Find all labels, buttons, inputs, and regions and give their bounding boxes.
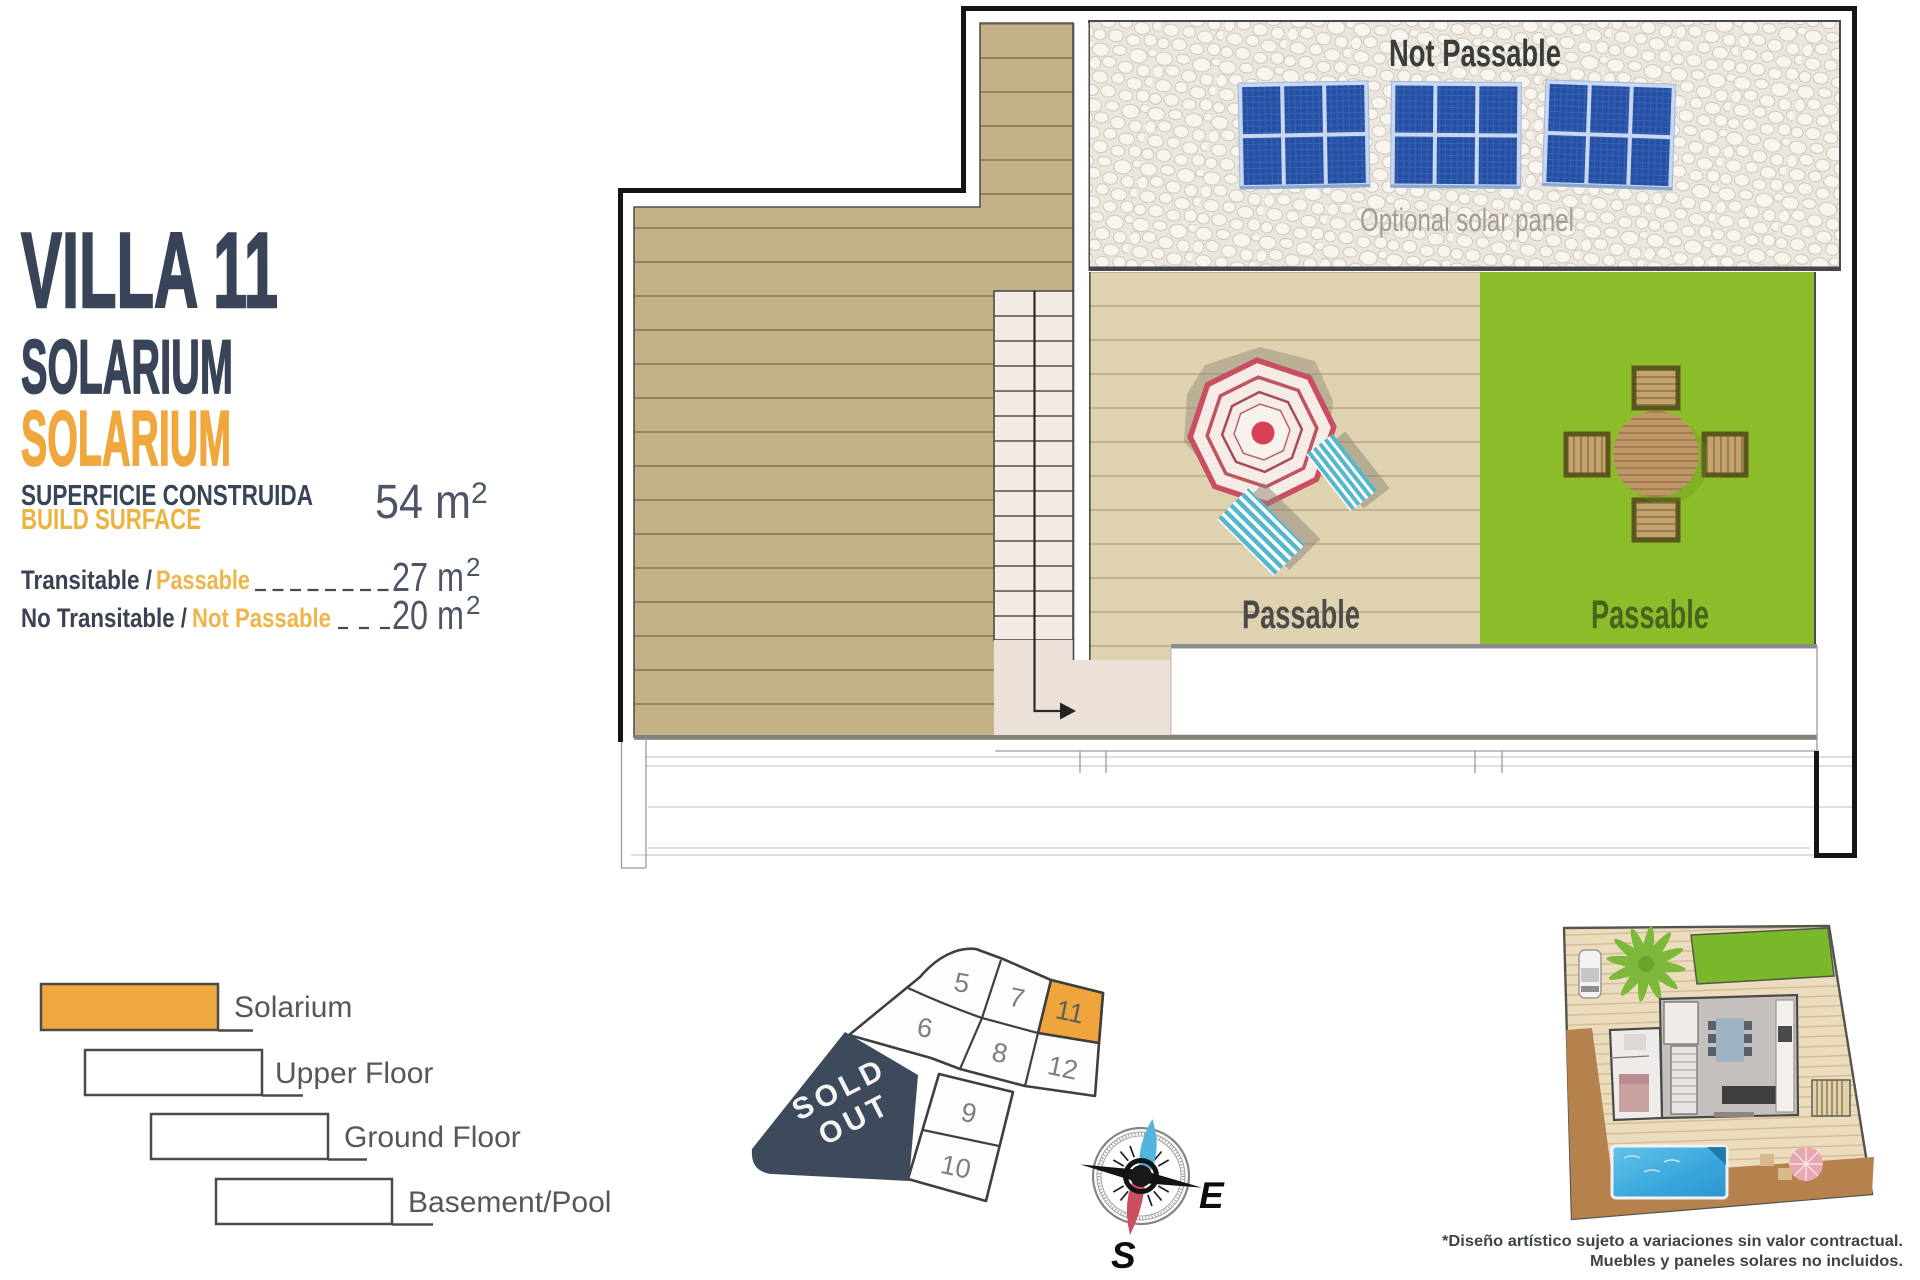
svg-text:Transitable /: Transitable / [21, 565, 152, 595]
svg-text:SOLARIUM: SOLARIUM [21, 394, 231, 482]
svg-text:*Diseño artístico sujeto a var: *Diseño artístico sujeto a variaciones s… [1442, 1233, 1903, 1250]
svg-text:2: 2 [466, 552, 480, 582]
svg-text:Solarium: Solarium [234, 991, 352, 1024]
svg-text:Not Passable: Not Passable [1389, 33, 1561, 75]
svg-text:Ground Floor: Ground Floor [344, 1121, 521, 1154]
svg-text:Passable: Passable [1591, 593, 1709, 637]
svg-text:BUILD SURFACE: BUILD SURFACE [21, 504, 201, 536]
svg-text:10: 10 [938, 1149, 974, 1185]
svg-text:2: 2 [466, 590, 480, 620]
svg-text:Basement/Pool: Basement/Pool [408, 1186, 611, 1219]
svg-text:54 m: 54 m [375, 476, 471, 529]
svg-text:Muebles y paneles solares no i: Muebles y paneles solares no incluidos. [1590, 1253, 1903, 1270]
svg-text:No Transitable /: No Transitable / [21, 603, 187, 633]
svg-text:S: S [1111, 1235, 1136, 1276]
svg-text:Not Passable: Not Passable [192, 603, 331, 633]
svg-text:2: 2 [471, 477, 488, 510]
svg-text:Upper Floor: Upper Floor [275, 1057, 433, 1090]
svg-text:Passable: Passable [1242, 593, 1360, 637]
svg-text:Passable: Passable [156, 565, 250, 595]
svg-text:20 m: 20 m [392, 592, 464, 638]
svg-text:E: E [1199, 1175, 1225, 1216]
svg-text:12: 12 [1045, 1050, 1081, 1086]
svg-text:VILLA 11: VILLA 11 [21, 210, 278, 330]
svg-text:Optional solar panel: Optional solar panel [1360, 202, 1574, 238]
